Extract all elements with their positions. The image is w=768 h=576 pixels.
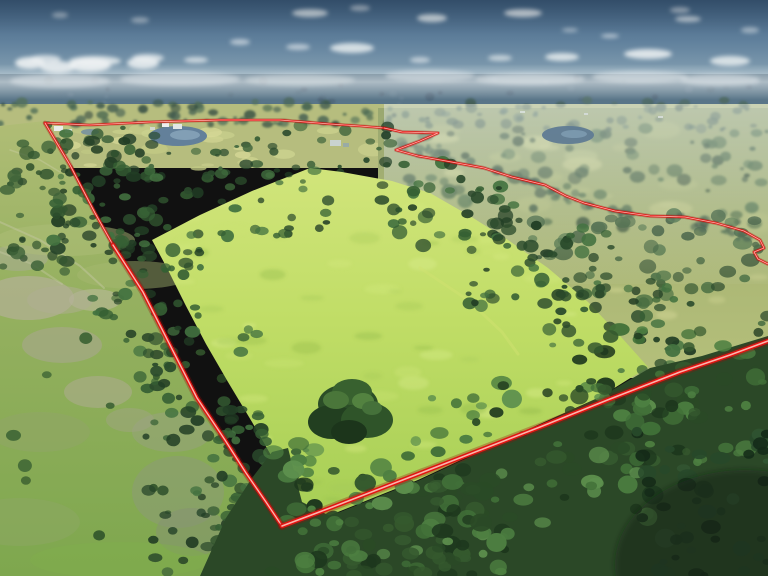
pond-right	[542, 126, 594, 144]
aerial-photo-canvas	[0, 0, 768, 576]
aerial-photo	[0, 0, 768, 576]
scene-layers	[0, 0, 768, 576]
vignette	[0, 0, 768, 34]
